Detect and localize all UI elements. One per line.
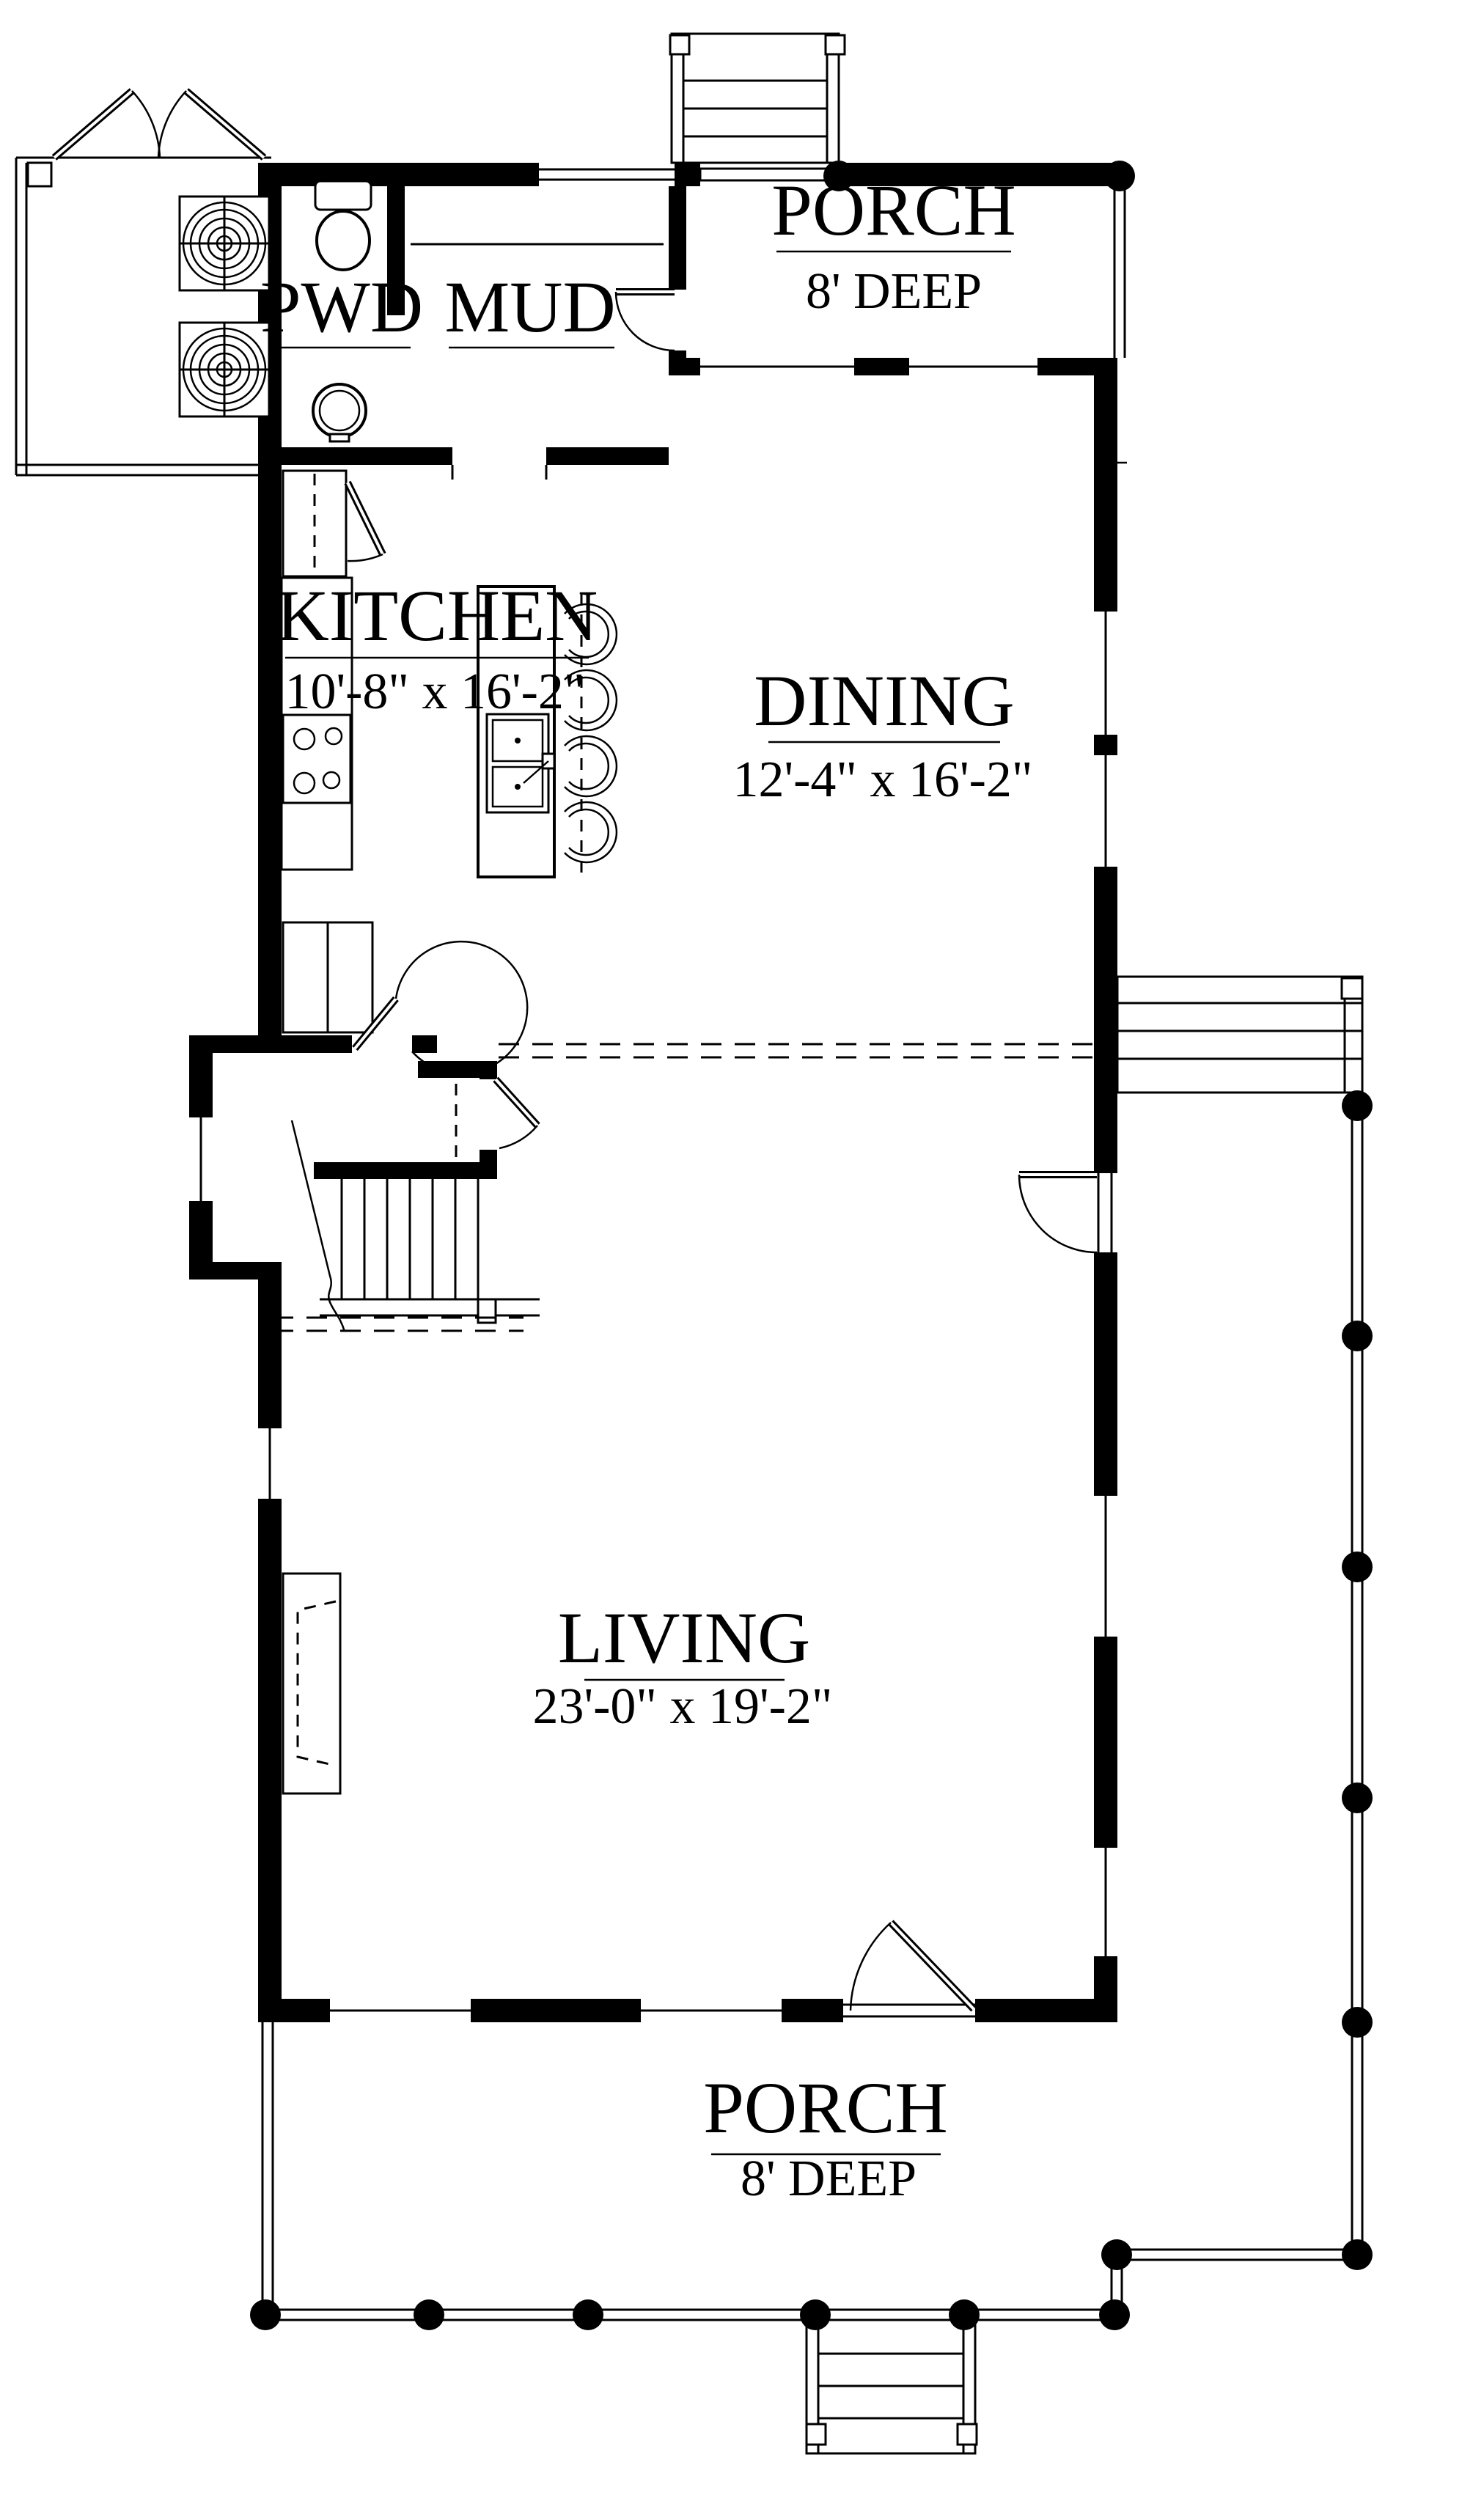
mud-door-swing <box>616 292 686 350</box>
living-porch-door-swing <box>851 1923 974 2011</box>
pedestal-sink-icon <box>313 384 366 441</box>
dining-label: DINING <box>754 660 1014 741</box>
refrigerator-icon <box>283 922 372 1032</box>
island-sink-icon <box>487 714 554 812</box>
toilet-icon <box>315 181 371 270</box>
hvac-unit-icon-1 <box>180 197 269 290</box>
deck-post <box>28 163 51 186</box>
pwd-label: PWD <box>260 266 423 348</box>
overhead-beam-lines <box>273 1044 1094 1331</box>
french-doors <box>54 91 264 158</box>
porch-bottom-steps <box>807 2320 977 2453</box>
entry-door-swing <box>355 941 527 1073</box>
coat-closet <box>456 1063 537 1164</box>
range-icon <box>283 715 350 803</box>
kitchen-label: KITCHEN <box>276 575 598 656</box>
porch-bottom-label: PORCH <box>703 2067 947 2148</box>
porch-top-label: PORCH <box>771 169 1015 251</box>
living-side-door-swing <box>1019 1175 1097 1252</box>
porch-top-railing <box>1114 186 1125 358</box>
mud-label: MUD <box>444 266 615 348</box>
stairs-icon <box>292 1120 540 1332</box>
kitchen-dims: 10'-8" x 16'-2" <box>285 664 585 720</box>
porch-top-steps <box>670 34 845 163</box>
pantry-icon <box>283 471 383 576</box>
porch-top-dims: 8' DEEP <box>806 263 982 320</box>
hvac-unit-icon-2 <box>180 323 269 416</box>
porch-bottom-dims: 8' DEEP <box>741 2151 917 2207</box>
room-labels: PWD MUD KITCHEN 10'-8" x 16'-2" DINING 1… <box>260 169 1033 2207</box>
side-steps-icon <box>1117 977 1362 1093</box>
floor-plan-canvas: PWD MUD KITCHEN 10'-8" x 16'-2" DINING 1… <box>0 0 1484 2493</box>
dining-dims: 12'-4" x 16'-2" <box>733 752 1033 808</box>
fireplace-icon <box>283 1574 340 1793</box>
living-label: LIVING <box>558 1597 810 1678</box>
living-dims: 23'-0" x 19'-2" <box>533 1678 833 1735</box>
